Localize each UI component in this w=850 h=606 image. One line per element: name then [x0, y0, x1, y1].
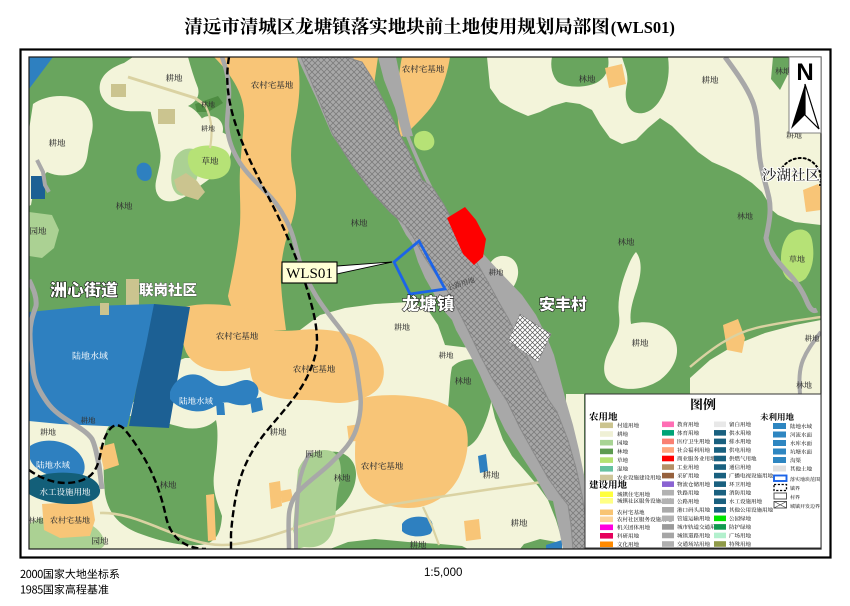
svg-text:1:5,000: 1:5,000: [424, 567, 462, 579]
svg-text:(WLS01): (WLS01): [611, 18, 675, 37]
svg-text:WLS01: WLS01: [286, 266, 333, 282]
svg-text:N: N: [796, 59, 813, 86]
